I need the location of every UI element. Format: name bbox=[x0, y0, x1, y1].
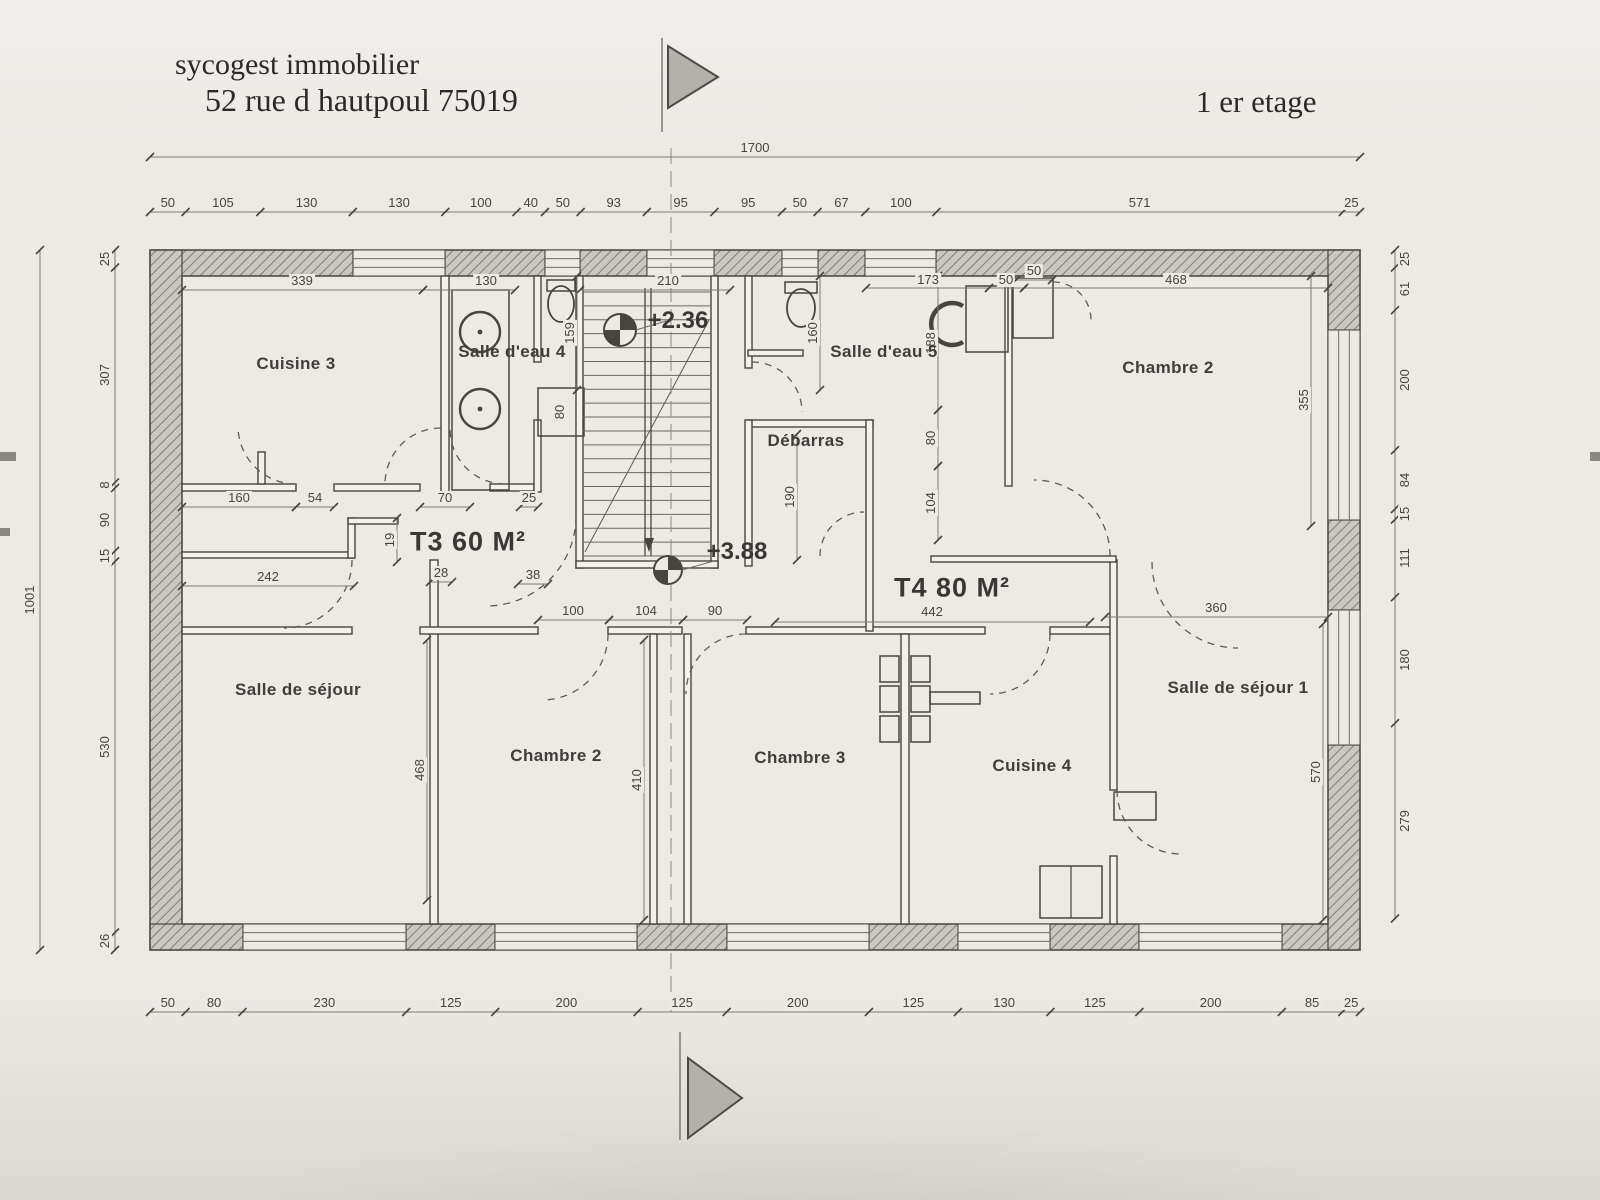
room-label: Cuisine 3 bbox=[256, 354, 335, 374]
dimension-label: 410 bbox=[630, 767, 644, 793]
dimension-label: 200 bbox=[1398, 367, 1412, 393]
dimension-label: 125 bbox=[1082, 996, 1108, 1010]
dimension-label: 104 bbox=[924, 490, 938, 516]
dimension-label: 95 bbox=[671, 196, 689, 210]
dimension-label: 15 bbox=[1398, 505, 1412, 523]
dimension-label: 84 bbox=[1398, 470, 1412, 488]
dimension-label: 360 bbox=[1203, 601, 1229, 615]
dimension-label: 28 bbox=[432, 566, 450, 580]
dimension-label: 80 bbox=[553, 403, 567, 421]
dimension-label: 50 bbox=[997, 273, 1015, 287]
dimension-label: 242 bbox=[255, 570, 281, 584]
dimension-label: 130 bbox=[386, 196, 412, 210]
dimension-label: 90 bbox=[98, 510, 112, 528]
dimension-label: 200 bbox=[1198, 996, 1224, 1010]
dimension-label: 26 bbox=[98, 932, 112, 950]
dimension-label: 104 bbox=[633, 604, 659, 618]
dimension-label: 468 bbox=[413, 757, 427, 783]
dimension-label: 25 bbox=[520, 491, 538, 505]
dimension-label: 61 bbox=[1398, 280, 1412, 298]
dimension-label: 15 bbox=[98, 547, 112, 565]
dimension-label: 279 bbox=[1398, 808, 1412, 834]
dimension-label: 25 bbox=[1342, 996, 1360, 1010]
dimension-label: 25 bbox=[1342, 196, 1360, 210]
dimension-label: 1001 bbox=[23, 584, 37, 617]
dimension-label: 1700 bbox=[739, 141, 772, 155]
dimension-label: 130 bbox=[991, 996, 1017, 1010]
dimension-label: 54 bbox=[306, 491, 324, 505]
dimension-label: 130 bbox=[294, 196, 320, 210]
label-overlay: 1700501051301301004050939595506710057125… bbox=[0, 0, 1600, 1200]
dimension-label: 38 bbox=[524, 568, 542, 582]
dimension-label: 90 bbox=[706, 604, 724, 618]
dimension-label: 125 bbox=[901, 996, 927, 1010]
dimension-label: 307 bbox=[98, 362, 112, 388]
dimension-label: 70 bbox=[436, 491, 454, 505]
level-label: +2.36 bbox=[648, 307, 709, 335]
dimension-label: 355 bbox=[1297, 387, 1311, 413]
dimension-label: 230 bbox=[311, 996, 337, 1010]
room-label: Chambre 2 bbox=[1122, 358, 1213, 378]
dimension-label: 8 bbox=[98, 480, 112, 491]
dimension-label: 180 bbox=[1398, 647, 1412, 673]
dimension-label: 40 bbox=[522, 196, 540, 210]
dimension-label: 468 bbox=[1163, 273, 1189, 287]
dimension-label: 85 bbox=[1303, 996, 1321, 1010]
dimension-label: 50 bbox=[159, 996, 177, 1010]
dimension-label: 210 bbox=[655, 274, 681, 288]
dimension-label: 19 bbox=[383, 531, 397, 549]
dimension-label: 50 bbox=[1025, 264, 1043, 278]
room-label: Salle d'eau 5 bbox=[830, 342, 938, 362]
dimension-label: 339 bbox=[289, 274, 315, 288]
dimension-label: 100 bbox=[560, 604, 586, 618]
dimension-label: 160 bbox=[806, 320, 820, 346]
room-label: Débarras bbox=[768, 431, 845, 451]
scanned-floorplan-page: { "header":{ "company":"sycogest immobil… bbox=[0, 0, 1600, 1200]
dimension-label: 50 bbox=[554, 196, 572, 210]
dimension-label: 570 bbox=[1309, 759, 1323, 785]
dimension-label: 50 bbox=[159, 196, 177, 210]
dimension-label: 200 bbox=[785, 996, 811, 1010]
room-label: Cuisine 4 bbox=[992, 756, 1071, 776]
dimension-label: 50 bbox=[791, 196, 809, 210]
dimension-label: 160 bbox=[226, 491, 252, 505]
dimension-label: 25 bbox=[98, 250, 112, 268]
dimension-label: 173 bbox=[915, 273, 941, 287]
dimension-label: 111 bbox=[1398, 546, 1412, 570]
dimension-label: 25 bbox=[1398, 250, 1412, 268]
dimension-label: 100 bbox=[468, 196, 494, 210]
dimension-label: 530 bbox=[98, 734, 112, 760]
room-label: Salle de séjour bbox=[235, 680, 361, 700]
room-label: Chambre 3 bbox=[754, 748, 845, 768]
dimension-label: 80 bbox=[205, 996, 223, 1010]
dimension-label: 80 bbox=[924, 429, 938, 447]
dimension-label: 67 bbox=[832, 196, 850, 210]
dimension-label: 93 bbox=[604, 196, 622, 210]
apartment-label: T4 80 M² bbox=[894, 573, 1010, 604]
dimension-label: 105 bbox=[210, 196, 236, 210]
dimension-label: 100 bbox=[888, 196, 914, 210]
room-label: Salle de séjour 1 bbox=[1168, 678, 1309, 698]
dimension-label: 130 bbox=[473, 274, 499, 288]
dimension-label: 571 bbox=[1127, 196, 1153, 210]
room-label: Chambre 2 bbox=[510, 746, 601, 766]
apartment-label: T3 60 M² bbox=[410, 527, 526, 558]
dimension-label: 125 bbox=[669, 996, 695, 1010]
dimension-label: 190 bbox=[783, 484, 797, 510]
dimension-label: 95 bbox=[739, 196, 757, 210]
dimension-label: 442 bbox=[919, 605, 945, 619]
dimension-label: 200 bbox=[554, 996, 580, 1010]
room-label: Salle d'eau 4 bbox=[458, 342, 566, 362]
dimension-label: 125 bbox=[438, 996, 464, 1010]
level-label: +3.88 bbox=[707, 538, 768, 566]
